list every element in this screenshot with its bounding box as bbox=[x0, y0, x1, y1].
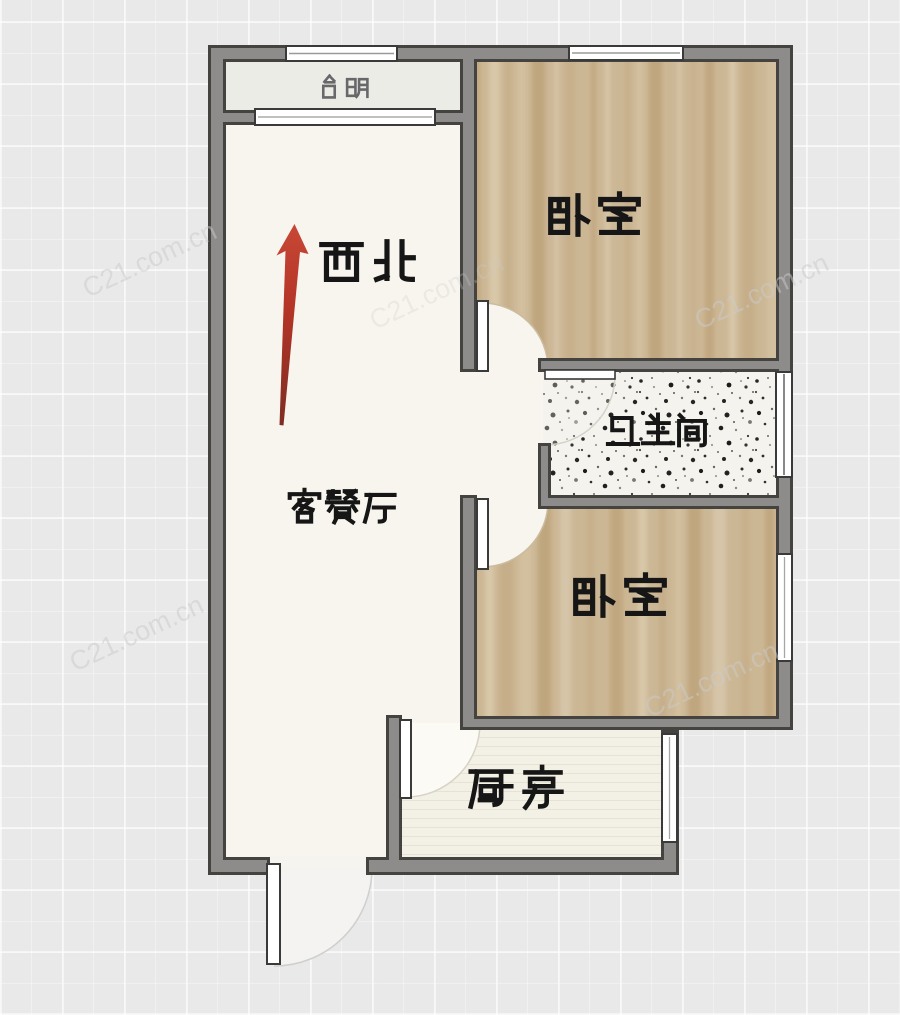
svg-text:C21.com.cn: C21.com.cn bbox=[65, 589, 208, 677]
svg-text:C21.com.cn: C21.com.cn bbox=[78, 215, 221, 303]
